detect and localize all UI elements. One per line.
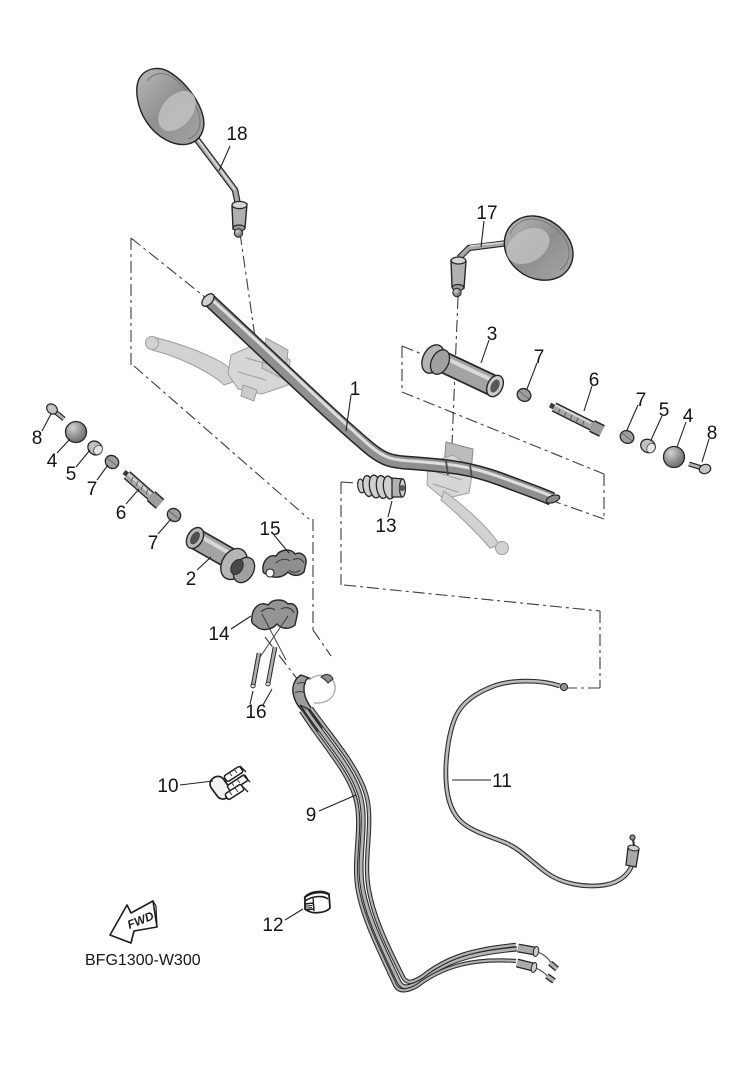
svg-text:13: 13 xyxy=(375,516,396,537)
svg-text:11: 11 xyxy=(492,771,512,792)
svg-text:18: 18 xyxy=(226,124,247,145)
svg-text:BFG1300-W300: BFG1300-W300 xyxy=(85,952,201,969)
svg-text:17: 17 xyxy=(476,203,497,224)
svg-text:3: 3 xyxy=(487,324,498,345)
svg-text:6: 6 xyxy=(116,503,127,524)
svg-text:2: 2 xyxy=(186,569,197,590)
svg-text:4: 4 xyxy=(47,451,58,472)
svg-text:1: 1 xyxy=(350,379,361,400)
svg-text:7: 7 xyxy=(534,347,545,368)
svg-text:15: 15 xyxy=(259,519,280,540)
svg-text:7: 7 xyxy=(87,479,98,500)
svg-text:5: 5 xyxy=(66,464,77,485)
svg-text:14: 14 xyxy=(208,624,230,645)
svg-text:5: 5 xyxy=(659,400,670,421)
svg-text:4: 4 xyxy=(683,406,694,427)
svg-text:7: 7 xyxy=(636,390,647,411)
svg-text:7: 7 xyxy=(148,533,159,554)
svg-text:6: 6 xyxy=(589,370,600,391)
svg-text:10: 10 xyxy=(157,776,178,797)
svg-text:8: 8 xyxy=(32,428,43,449)
svg-text:8: 8 xyxy=(707,423,718,444)
svg-text:12: 12 xyxy=(262,915,283,936)
svg-text:9: 9 xyxy=(306,805,317,826)
svg-text:16: 16 xyxy=(245,702,266,723)
